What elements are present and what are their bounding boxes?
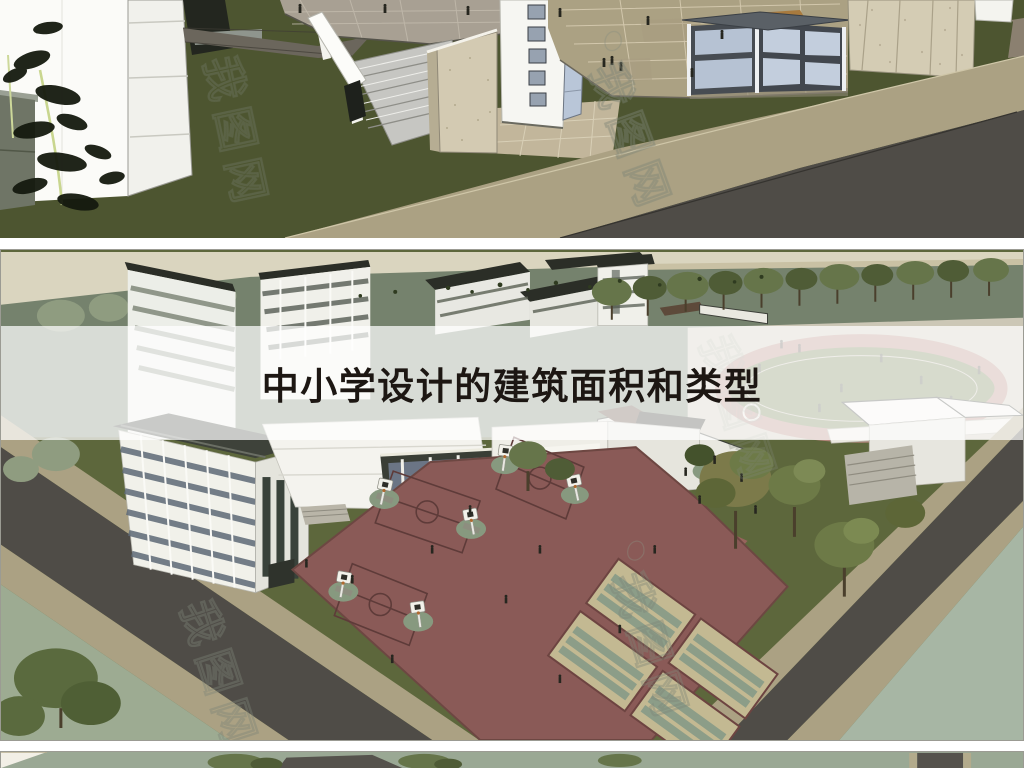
glass-gatehouse bbox=[682, 10, 850, 99]
entrance-render: 我图网 我图网 bbox=[0, 0, 1024, 238]
composite-image: 我图网 我图网 bbox=[0, 0, 1024, 768]
strip-render bbox=[1, 752, 1023, 768]
campus-render: 我图网 我图网 我图网 bbox=[1, 250, 1023, 740]
campus-render-section: 我图网 我图网 我图网 中小学设计的建筑面积和类型 bbox=[0, 249, 1024, 741]
title-banner: 中小学设计的建筑面积和类型 bbox=[1, 326, 1023, 440]
white-gap bbox=[0, 741, 1024, 751]
vertical-road bbox=[909, 753, 971, 768]
stone-gate-wall bbox=[427, 30, 497, 153]
ground bbox=[1, 752, 1023, 768]
white-gap bbox=[0, 238, 1024, 249]
strip-render-section bbox=[0, 751, 1024, 768]
entrance-render-section: 我图网 我图网 bbox=[0, 0, 1024, 238]
image-title: 中小学设计的建筑面积和类型 bbox=[262, 356, 763, 410]
